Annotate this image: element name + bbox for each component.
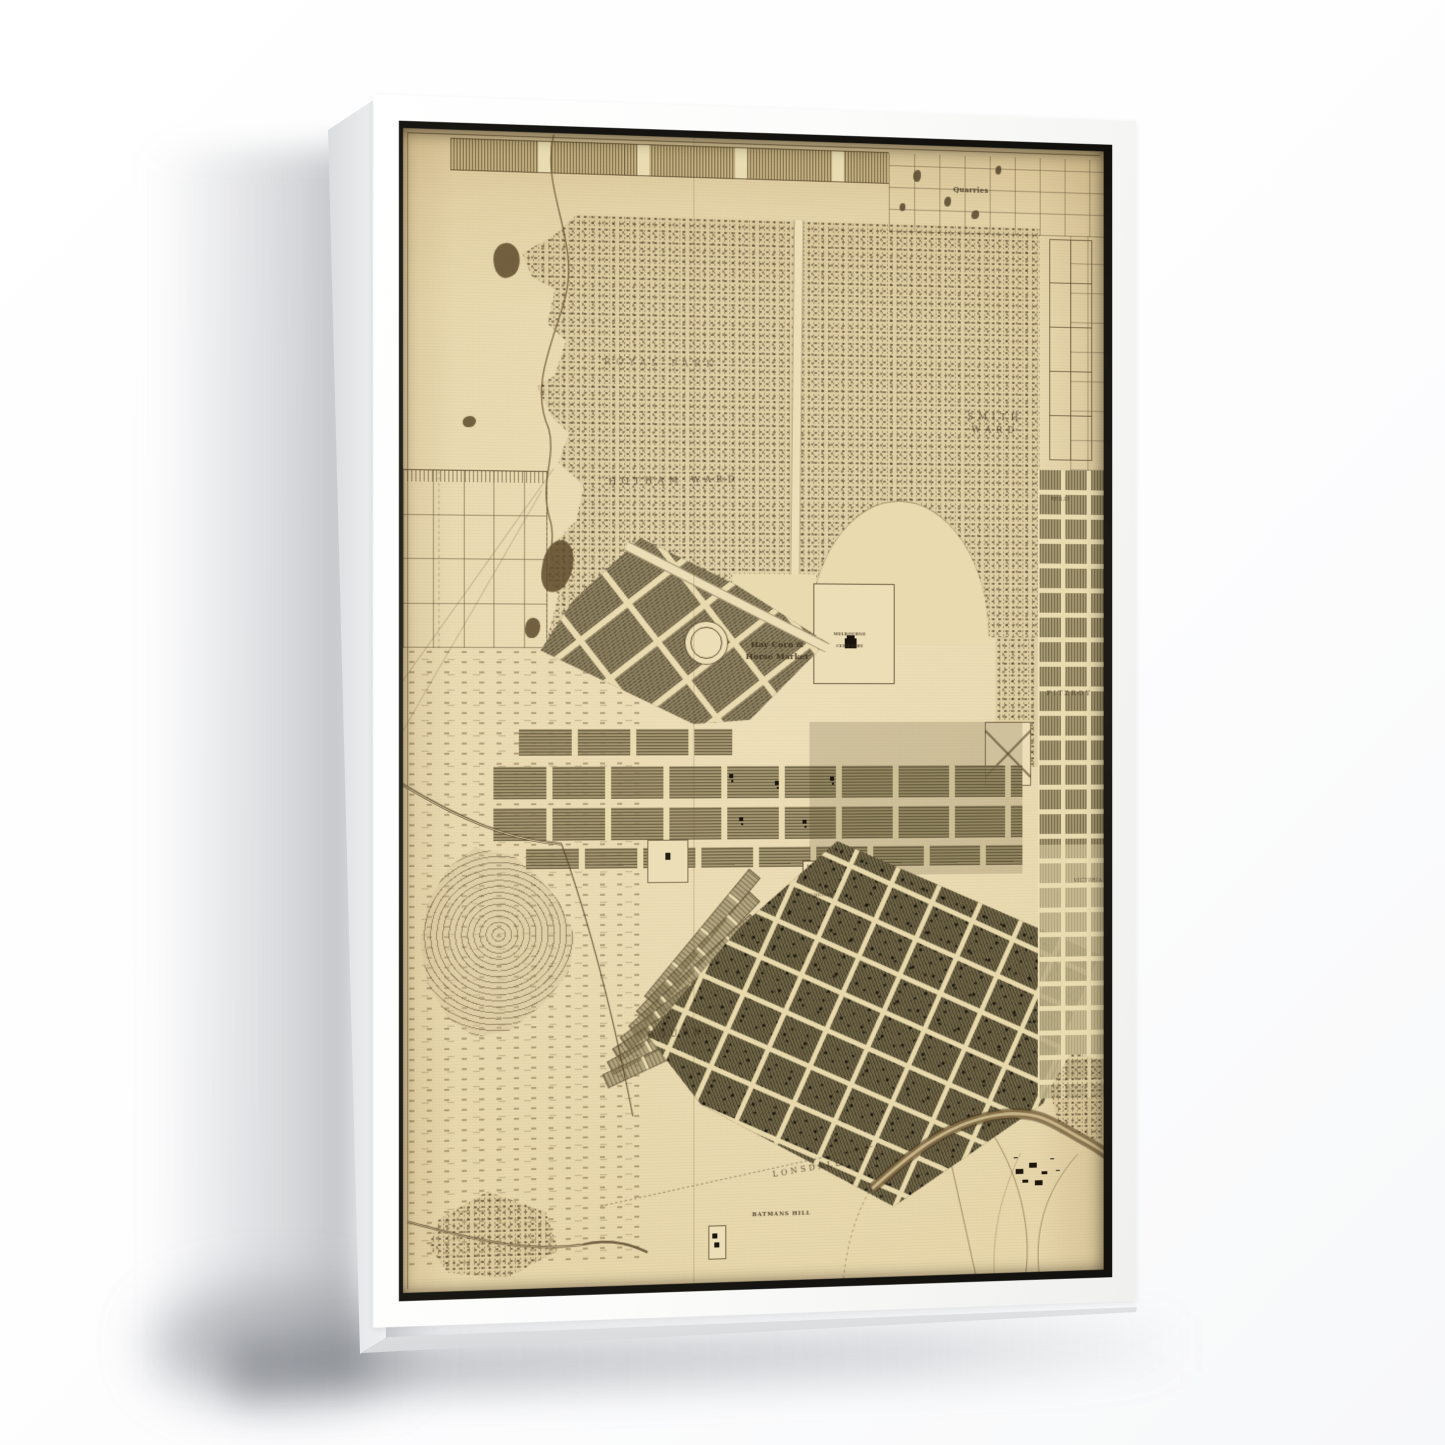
canvas-map: QuarriesROYAL PARKHOTHAM WARDSMITH WARDH… (403, 128, 1104, 1293)
frame-front-face: QuarriesROYAL PARKHOTHAM WARDSMITH WARDH… (373, 94, 1136, 1328)
floating-frame-panel: QuarriesROYAL PARKHOTHAM WARDSMITH WARDH… (373, 94, 1136, 1328)
victoria-parade-label: VICTORIA (1074, 878, 1103, 885)
towing-path-dashed (844, 1187, 872, 1279)
product-photo: QuarriesROYAL PARKHOTHAM WARDSMITH WARDH… (0, 0, 1445, 1445)
ward-boundary-dotted (601, 1146, 876, 1207)
left-drop-shadow (150, 148, 360, 1382)
fitzroy-label: FITZROY (1047, 689, 1092, 699)
survey-line (403, 489, 542, 742)
railway-arc (403, 780, 562, 845)
yarra-river-highlight (872, 1111, 1104, 1188)
railway-terminus-buildings (1016, 1169, 1024, 1174)
haymarket-label: Hay Corn & Horse Market (746, 638, 809, 662)
yarra-river (872, 1111, 1104, 1188)
royal-park-label: ROYAL PARK (604, 357, 718, 373)
gas-works-block (709, 1225, 727, 1260)
country-road (985, 1121, 1027, 1274)
moonee-ponds-creek (542, 135, 569, 561)
canvas-fold-line (694, 138, 695, 1284)
smith-ward-label: SMITH WARD (941, 410, 1050, 438)
waterways-roads-svg (403, 128, 1104, 1293)
country-road (1038, 1154, 1078, 1272)
batmans-hill-label: BATMANS HILL (752, 1209, 811, 1219)
railway-line (562, 843, 633, 1118)
yarra-river-bank (872, 1111, 1104, 1188)
country-road (946, 1137, 976, 1275)
quarries-label: Quarries (953, 185, 988, 196)
melbourne-cemetery-label: MELBOURNE CEMETERY (834, 631, 866, 649)
railway-arc-center (403, 780, 562, 845)
reilly-street-label: REILLY (1051, 497, 1070, 504)
old-cemetery-label: CEMETERY (807, 893, 834, 899)
bottom-creek (407, 1215, 648, 1260)
survey-line (403, 466, 554, 689)
